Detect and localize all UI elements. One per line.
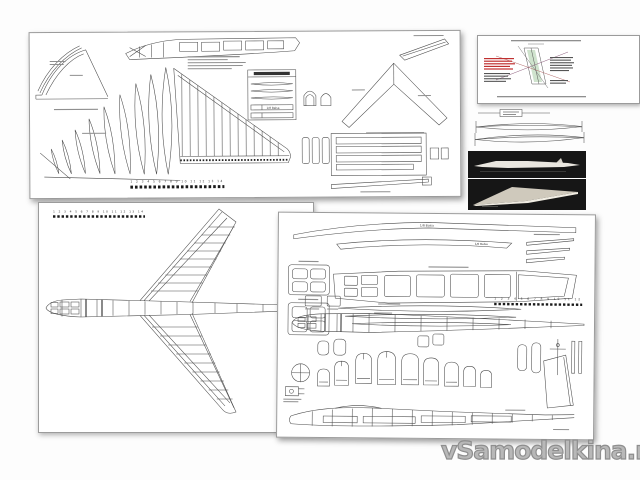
scale-ruler: 1 2 3 4 5 6 7 8 9 10 11 12	[494, 297, 582, 305]
formers-row	[283, 333, 582, 405]
svg-text:1 2 3 4 5 6 7 8 9 10 11 12 13: 1 2 3 4 5 6 7 8 9 10 11 12 13 14	[53, 210, 143, 214]
aircraft-top-view: 1 2 3 4 5 6 7 8 9 10 11 12 13 14	[39, 203, 313, 432]
balsa-strip: 1/8 Balsa 1/8 Balsa	[294, 221, 576, 263]
photo-fuselage-side	[468, 151, 586, 178]
balsa-label: 1/8 Balsa	[420, 223, 434, 227]
scanned-plans-page: { "watermark": { "text": "vSamodelkina.r…	[0, 0, 640, 480]
svg-text:1 2 3 4 5 6 7 8 9 10 11 12: 1 2 3 4 5 6 7 8 9 10 11 12	[494, 297, 580, 302]
parts-table: 1/8 Balsa	[248, 70, 296, 120]
fin-drawing	[36, 46, 108, 110]
watermark-text: vSamodelkina.ru	[441, 436, 640, 466]
stabilizer-drawing	[342, 63, 447, 134]
sheet-fuselage-parts: 1/8 Balsa 1/8 Balsa	[276, 212, 596, 441]
red-note-lines	[484, 58, 515, 70]
balsa-label-2: 1/8 Balsa	[475, 242, 488, 246]
canopy-parts	[302, 91, 331, 164]
wing-panel-drawing	[174, 68, 291, 164]
balsa-label: 1/8 Balsa	[266, 106, 279, 110]
ply-part-group	[288, 261, 330, 335]
spar-blades	[305, 296, 521, 327]
fuselage-top-view	[292, 313, 584, 335]
fuselage-top-template	[476, 121, 582, 133]
caption-line-bottom	[497, 96, 586, 97]
photo-caption	[482, 206, 498, 207]
caption-line	[511, 40, 581, 41]
wing-parts-drawing: 1/8 Balsa 1 2 3 4 5 6 7 8 9 10 11 12 13 …	[30, 31, 461, 198]
spar-drawing	[331, 177, 431, 193]
upper-wing	[140, 209, 236, 303]
fin-side-view	[543, 355, 573, 408]
instruction-card	[477, 35, 640, 104]
reflection	[480, 171, 566, 172]
sheet-full-plan: 1 2 3 4 5 6 7 8 9 10 11 12 13 14	[38, 202, 314, 433]
label-line	[478, 110, 550, 117]
fuselage-plan	[46, 299, 301, 317]
fuselage-parts-drawing: 1/8 Balsa 1/8 Balsa	[277, 213, 595, 440]
wing-rib-fan	[40, 67, 181, 181]
fuselage-side-view	[289, 353, 574, 430]
sheet-wing-parts-plan: 1/8 Balsa 1 2 3 4 5 6 7 8 9 10 11 12 13 …	[29, 30, 462, 199]
fuselage-template-drawings	[470, 106, 638, 150]
wingtip-drawing	[400, 35, 449, 60]
scale-ruler: 1 2 3 4 5 6 7 8 9 10 11 12 13 14	[130, 179, 224, 187]
svg-text:1 2 3 4 5 6 7 8 9 10 11 12 13: 1 2 3 4 5 6 7 8 9 10 11 12 13 14	[130, 179, 222, 183]
card-diagram	[478, 36, 639, 103]
lower-wing	[140, 313, 236, 413]
sheeting-parts	[331, 133, 448, 176]
scale-ruler: 1 2 3 4 5 6 7 8 9 10 11 12 13 14	[53, 210, 145, 217]
text-block	[188, 56, 246, 69]
fuselage-top-template-2	[475, 132, 584, 146]
photo-wing	[468, 179, 586, 210]
